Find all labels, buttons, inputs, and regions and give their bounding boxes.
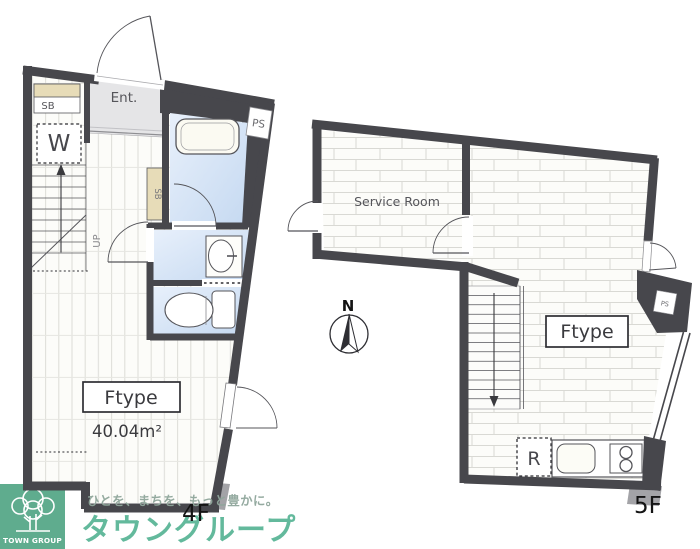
service-room-label: Service Room [354,194,440,209]
toilet [212,291,235,328]
fridge-label: R [527,448,540,470]
pipe-space-label-4f: PS [251,117,266,131]
pipe-space-label-5f: PS [660,299,669,308]
shoebox-label: SB [41,101,54,112]
floor-label-5f: 5F [634,493,662,519]
compass-north-label: N [342,297,355,315]
kitchen-sink [557,444,595,473]
washer-label: W [48,131,71,157]
floorplan-page: TOWN GROUP [0,0,700,549]
entrance-door [150,16,161,80]
floorplan-drawing: Ent. SB W SB UP PS Ftype 40.04m² [0,0,700,549]
stairs-up-label: UP [92,234,103,247]
floorplan-4f: Ent. SB W SB UP PS Ftype 40.04m² [23,16,277,510]
room-type-label-4f: Ftype [104,387,157,409]
room-area-label-4f: 40.04m² [92,422,162,441]
compass-north-icon: N [330,297,368,353]
floor-label-4f: 4F [182,501,210,527]
bathtub [176,119,239,154]
shoebox-tall-label: SB [152,188,162,199]
stairs-5f [466,286,524,409]
main-room-door-5f [642,241,652,272]
room-type-label-5f: Ftype [560,321,613,343]
entrance-label: Ent. [111,90,138,106]
